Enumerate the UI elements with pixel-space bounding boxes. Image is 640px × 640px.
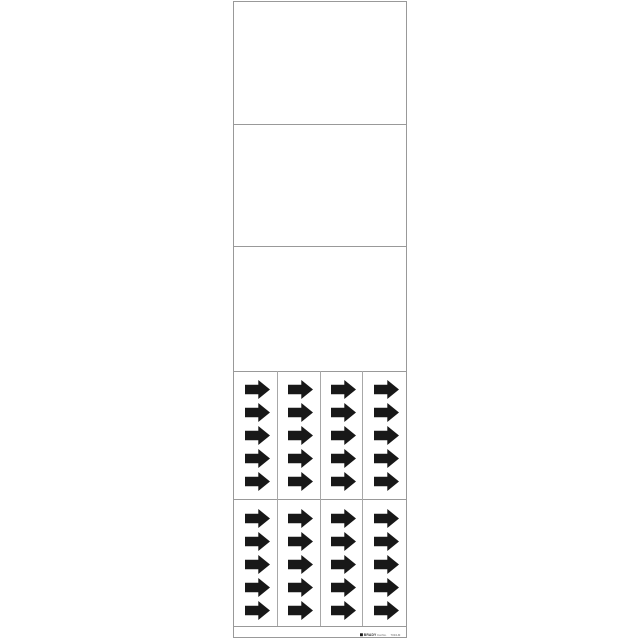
- svg-text:BRADY: BRADY: [364, 633, 377, 637]
- svg-text:Cat No.: Cat No.: [377, 633, 387, 637]
- svg-text:7034-M: 7034-M: [391, 633, 401, 637]
